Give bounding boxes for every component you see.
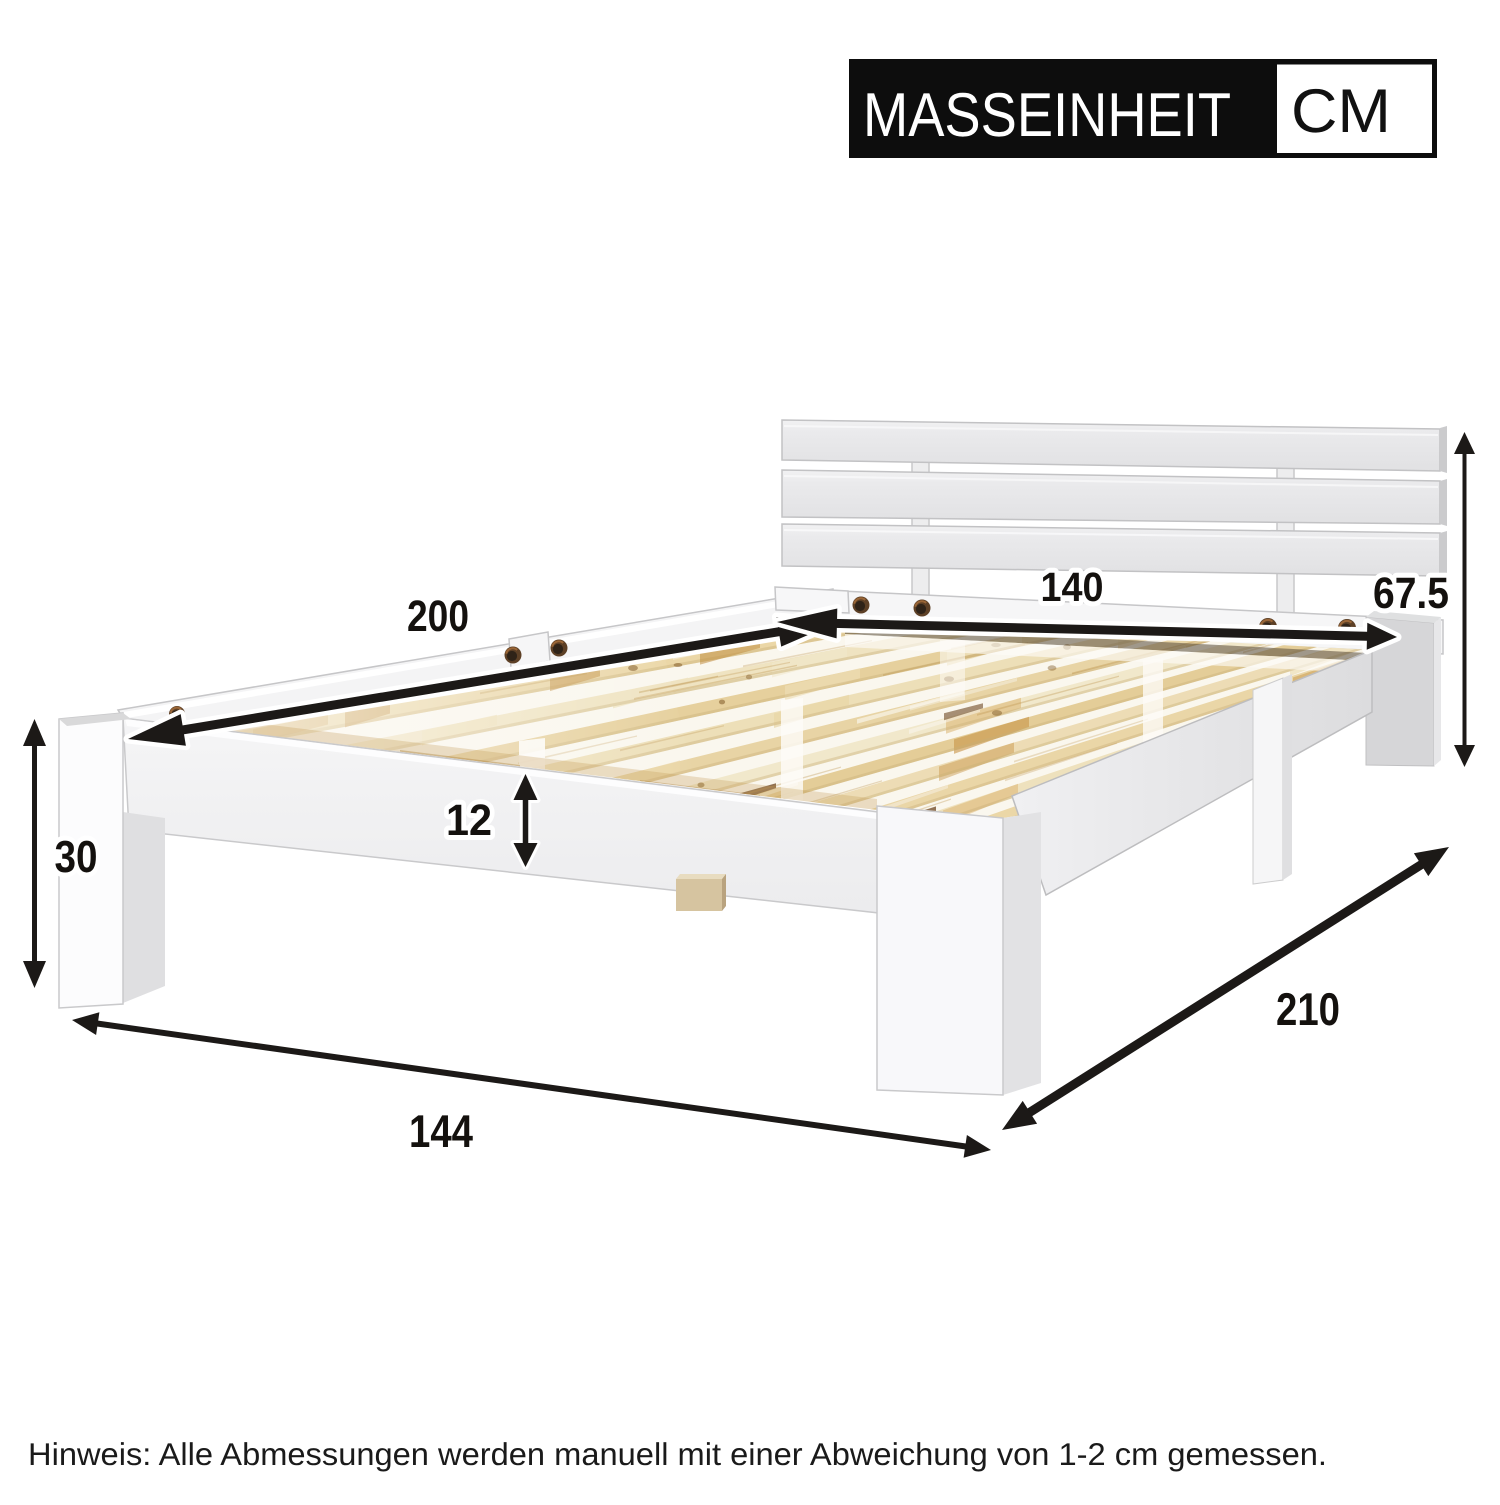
svg-text:67.5: 67.5 bbox=[1373, 569, 1449, 618]
svg-text:Hinweis: Alle Abmessungen werd: Hinweis: Alle Abmessungen werden manuell… bbox=[28, 1436, 1327, 1472]
svg-text:200: 200 bbox=[407, 592, 469, 641]
svg-text:CM: CM bbox=[1291, 77, 1391, 146]
svg-text:30: 30 bbox=[55, 831, 98, 882]
svg-text:144: 144 bbox=[409, 1105, 473, 1157]
svg-text:140: 140 bbox=[1041, 564, 1104, 610]
svg-text:MASSEINHEIT: MASSEINHEIT bbox=[863, 81, 1231, 150]
svg-text:210: 210 bbox=[1276, 983, 1340, 1035]
svg-text:12: 12 bbox=[446, 796, 492, 845]
